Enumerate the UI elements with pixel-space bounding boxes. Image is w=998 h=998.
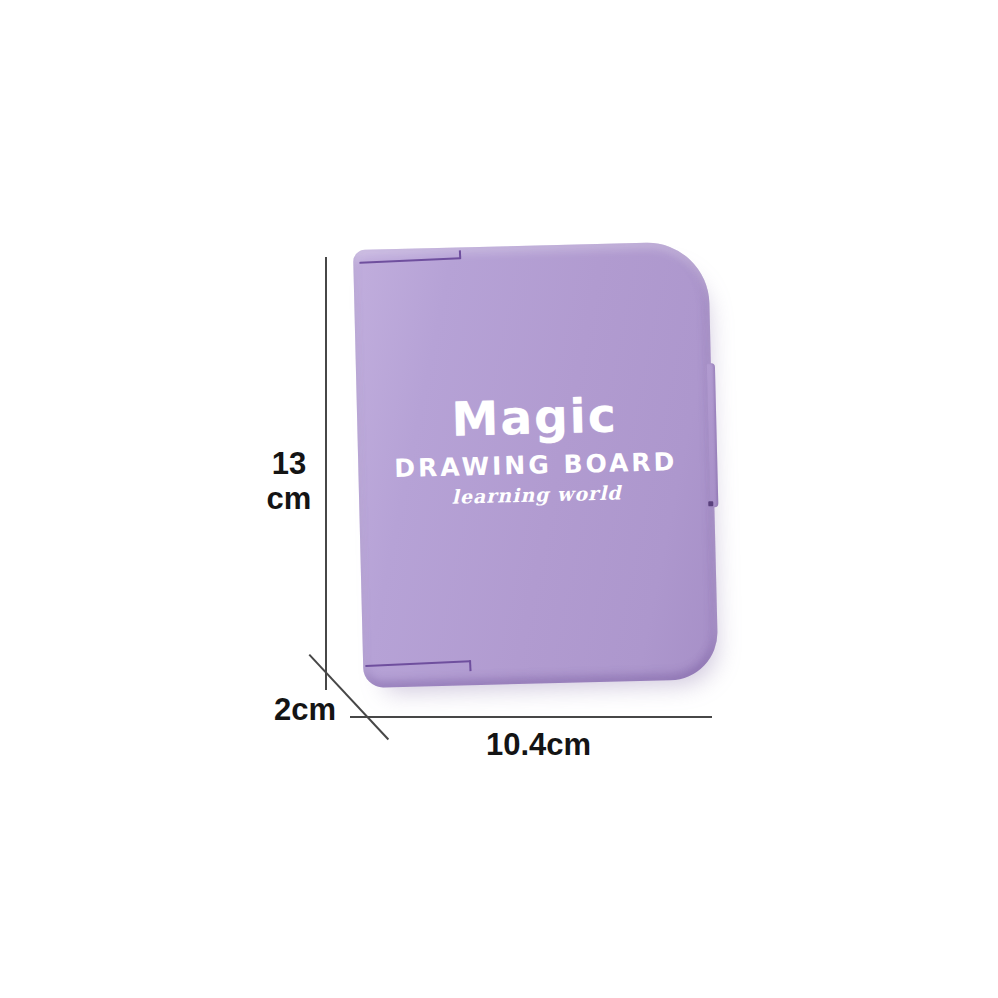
height-dimension-label: 13 cm — [258, 447, 320, 516]
height-value: 13 — [258, 447, 320, 482]
width-dimension-label: 10.4cm — [486, 728, 591, 763]
drawing-board: Magic DRAWING BOARD learning world — [353, 241, 719, 688]
board-top-hinge-seam — [359, 257, 461, 264]
board-bottom-hinge-seam — [365, 660, 471, 667]
board-title: Magic — [357, 389, 713, 445]
width-dimension-line — [350, 716, 712, 718]
board-subtitle: DRAWING BOARD — [358, 448, 714, 482]
height-unit: cm — [258, 482, 320, 517]
board-clasp-notch — [708, 501, 713, 506]
depth-dimension-label: 2cm — [274, 693, 336, 728]
height-dimension-line — [325, 257, 327, 690]
product-dimension-image: Magic DRAWING BOARD learning world 13 cm… — [0, 0, 998, 998]
board-print-label: Magic DRAWING BOARD learning world — [357, 389, 715, 509]
board-tagline: learning world — [359, 481, 714, 509]
